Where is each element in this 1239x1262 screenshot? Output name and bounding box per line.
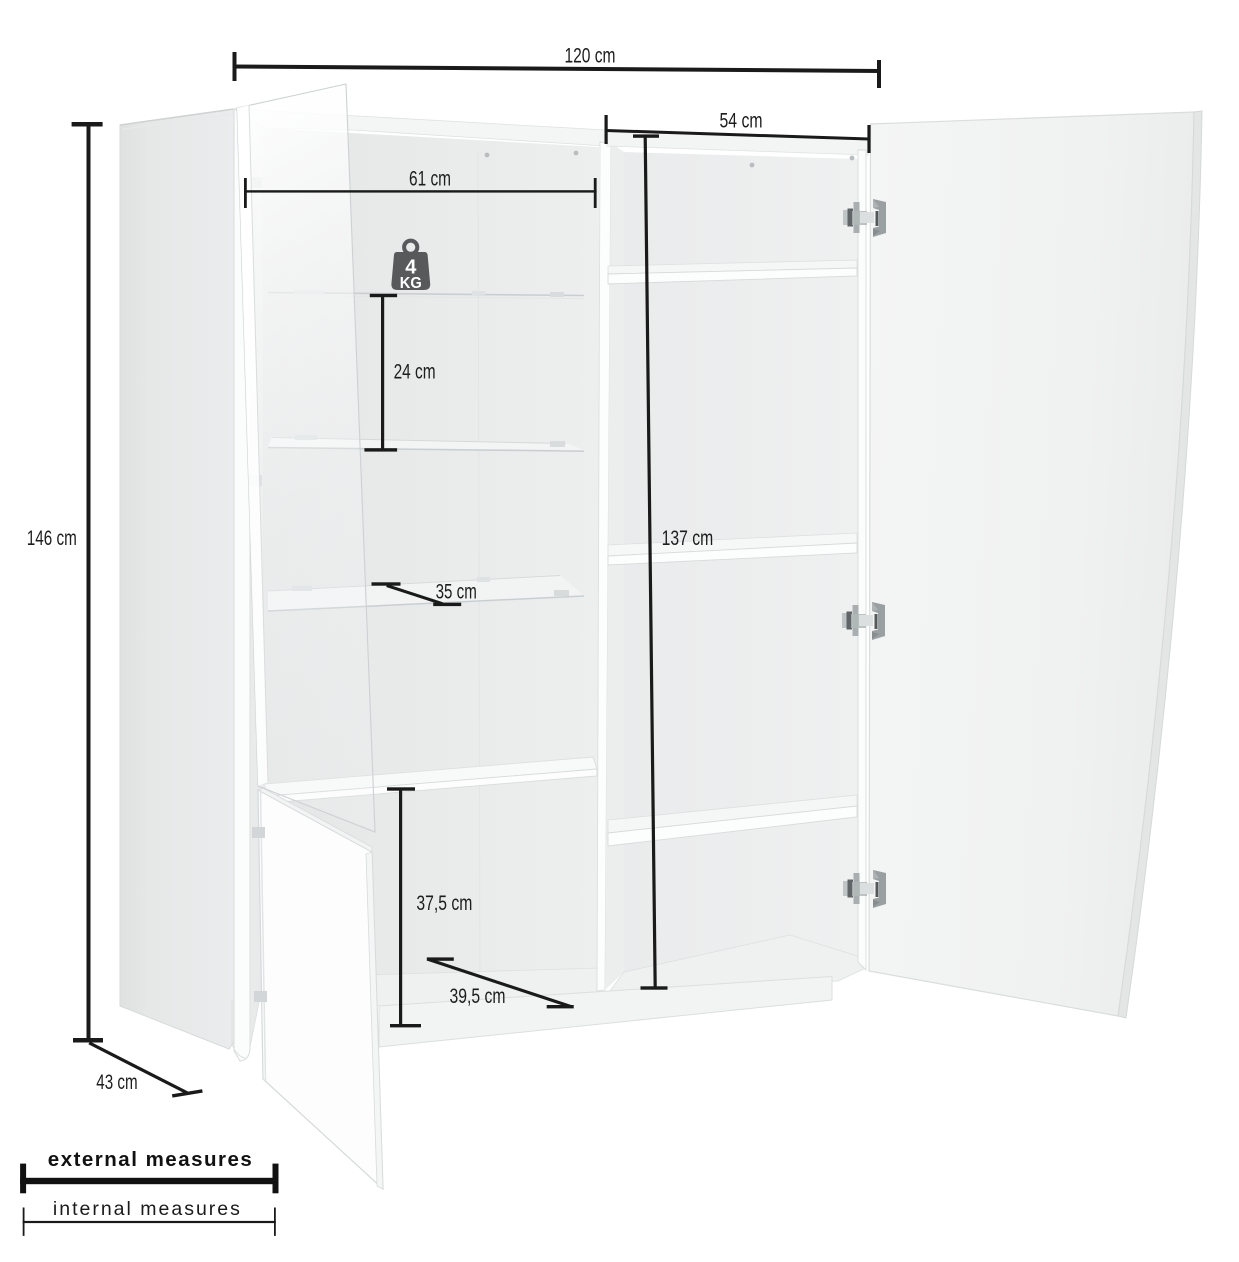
svg-text:120 cm: 120 cm bbox=[565, 45, 616, 68]
svg-text:146 cm: 146 cm bbox=[27, 527, 77, 550]
svg-text:37,5 cm: 37,5 cm bbox=[416, 892, 472, 915]
svg-text:137 cm: 137 cm bbox=[662, 527, 714, 550]
svg-text:external measures: external measures bbox=[48, 1148, 252, 1171]
svg-text:35 cm: 35 cm bbox=[436, 581, 477, 604]
svg-text:24 cm: 24 cm bbox=[394, 361, 436, 384]
svg-text:61 cm: 61 cm bbox=[409, 168, 451, 191]
svg-text:39,5 cm: 39,5 cm bbox=[450, 985, 506, 1008]
svg-text:internal measures: internal measures bbox=[53, 1198, 240, 1220]
svg-text:43 cm: 43 cm bbox=[96, 1071, 137, 1094]
svg-text:KG: KG bbox=[400, 275, 422, 292]
svg-text:54 cm: 54 cm bbox=[720, 110, 763, 133]
